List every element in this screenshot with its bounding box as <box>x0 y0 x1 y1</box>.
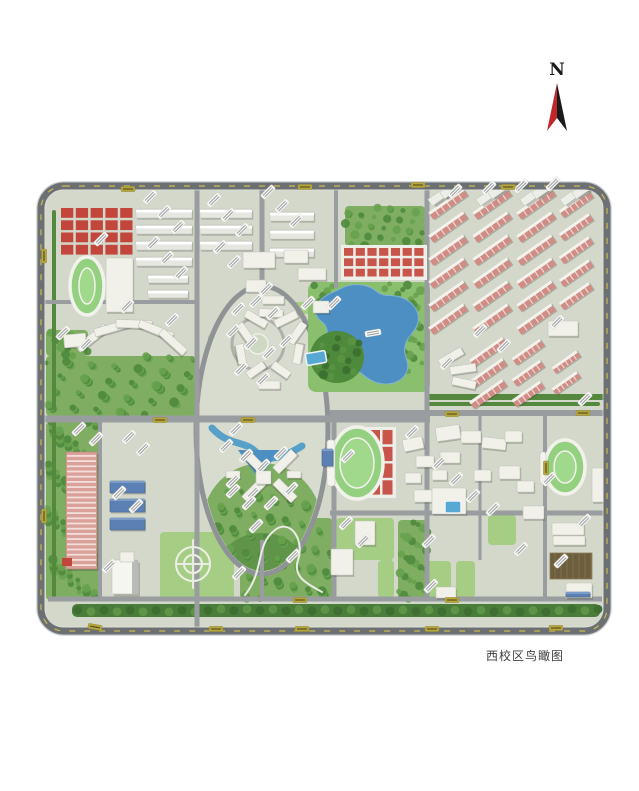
building <box>436 587 456 598</box>
tree <box>415 239 422 246</box>
tree <box>91 589 98 596</box>
court-cell <box>383 480 393 494</box>
roof-ridge <box>148 291 188 294</box>
court-cell <box>91 208 103 218</box>
tree <box>56 343 65 352</box>
court-cell <box>367 248 376 256</box>
tree <box>387 205 394 212</box>
boulevard-tree <box>269 605 278 614</box>
road-label <box>209 626 223 631</box>
court-cell <box>120 245 132 255</box>
stripe <box>67 543 96 545</box>
boulevard-tree <box>308 607 317 616</box>
tree <box>420 361 425 366</box>
label-text-line <box>551 627 561 628</box>
tree <box>184 371 190 377</box>
building-group <box>243 252 276 270</box>
tree <box>116 407 125 416</box>
building <box>405 473 421 483</box>
building <box>414 490 432 502</box>
boulevard-tree <box>321 605 330 614</box>
tree <box>350 369 357 376</box>
tree <box>299 521 305 527</box>
tree <box>169 397 179 407</box>
tree <box>69 352 76 359</box>
building-group <box>298 268 327 282</box>
tree <box>387 282 392 287</box>
label-text-line <box>578 412 588 413</box>
boulevard-tree <box>347 605 356 614</box>
building-group <box>553 536 586 547</box>
building-group <box>331 549 354 577</box>
tree <box>396 568 405 577</box>
boulevard-tree <box>555 606 564 615</box>
building-group <box>474 470 492 483</box>
tree <box>417 341 421 345</box>
label-text-line <box>413 184 423 185</box>
boulevard-tree <box>516 607 525 616</box>
label-text-line <box>243 419 253 420</box>
boulevard-tree <box>152 606 161 615</box>
building <box>505 431 522 442</box>
building <box>499 466 520 479</box>
boulevard-tree <box>425 606 434 615</box>
tree <box>60 519 66 525</box>
road-label <box>543 461 548 475</box>
building <box>523 506 544 519</box>
court-cell <box>344 258 353 266</box>
map-interior <box>41 172 608 631</box>
roof-ridge <box>110 481 145 483</box>
hedge <box>52 420 56 600</box>
tree <box>353 348 362 357</box>
road-label <box>576 410 590 415</box>
tree <box>374 204 382 212</box>
tree <box>44 401 52 409</box>
tree <box>72 440 78 446</box>
boulevard-tree <box>373 605 382 614</box>
stripe <box>67 491 96 493</box>
road-label <box>445 597 459 602</box>
label-text-line <box>297 628 307 629</box>
road-label <box>445 411 459 416</box>
boulevard-tree <box>334 607 343 616</box>
tree <box>134 364 143 373</box>
building-group <box>481 437 507 452</box>
boulevard-tree <box>87 607 96 616</box>
building <box>474 470 491 481</box>
striped-building <box>66 452 97 569</box>
tree <box>406 228 413 235</box>
tree <box>345 358 352 365</box>
tree <box>335 335 341 341</box>
tree <box>82 584 91 593</box>
court-cell <box>367 258 376 266</box>
tree <box>64 435 72 443</box>
building <box>284 250 308 263</box>
boulevard-tree <box>568 605 577 614</box>
tree <box>177 384 185 392</box>
court-cell <box>344 269 353 277</box>
tree <box>75 390 80 395</box>
tree <box>123 394 130 401</box>
boulevard-tree <box>477 606 486 615</box>
label-text-line <box>503 186 513 187</box>
building <box>287 471 301 478</box>
tree <box>364 233 372 241</box>
tree <box>340 346 346 352</box>
campus-map <box>0 0 639 791</box>
swimming-pool <box>445 501 461 513</box>
road-label <box>241 417 255 422</box>
red-hut <box>62 558 72 566</box>
lawn <box>456 561 475 598</box>
page: N 西校区鸟瞰图 <box>0 0 639 791</box>
tree <box>61 350 70 359</box>
boulevard-tree <box>594 605 603 614</box>
court-cell <box>105 208 117 218</box>
roof-ridge <box>322 449 333 451</box>
building-group <box>414 490 433 504</box>
stripe <box>67 538 96 540</box>
building-group <box>287 471 302 480</box>
building <box>435 424 461 441</box>
tree <box>111 363 116 368</box>
tower-side <box>132 560 138 594</box>
stripe <box>67 476 96 478</box>
pool-group <box>445 501 461 513</box>
swimming-pool <box>305 350 327 365</box>
stripe <box>67 512 96 514</box>
building-group <box>256 471 272 486</box>
tree <box>166 354 172 360</box>
tree <box>342 366 350 374</box>
court-cell <box>61 208 73 218</box>
court-cell <box>414 269 423 277</box>
building <box>592 468 604 502</box>
tree <box>396 589 401 594</box>
road-label <box>41 509 46 523</box>
boulevard-tree <box>503 606 512 615</box>
building <box>298 268 326 280</box>
court-cell <box>414 248 423 256</box>
tree <box>400 208 405 213</box>
building <box>432 470 447 480</box>
label-text-line <box>300 186 310 187</box>
court-cell <box>91 220 103 230</box>
court-cell <box>403 248 412 256</box>
court-cell <box>379 269 388 277</box>
tree <box>400 287 405 292</box>
tree <box>142 352 150 360</box>
roof-ridge <box>200 210 252 213</box>
court-cell <box>383 430 393 444</box>
tree <box>396 216 403 223</box>
boulevard-tree <box>74 606 83 615</box>
building <box>553 536 585 545</box>
tree <box>316 527 322 533</box>
tree <box>355 340 362 347</box>
boulevard-tree <box>113 607 122 616</box>
label-text-line <box>427 628 437 629</box>
court-cell <box>391 269 400 277</box>
court-cell <box>379 248 388 256</box>
tree <box>93 407 98 412</box>
tree <box>319 370 328 379</box>
tree <box>347 337 356 346</box>
boulevard-tree <box>282 606 291 615</box>
boulevard-tree <box>243 605 252 614</box>
label-text-line <box>447 599 457 600</box>
label-text-line <box>545 463 546 473</box>
tower-wing <box>120 552 134 562</box>
tree <box>306 564 315 573</box>
stripe <box>67 523 96 525</box>
tree <box>274 577 283 586</box>
stripe <box>67 528 96 530</box>
roof-ridge <box>566 592 590 594</box>
court-cell <box>105 220 117 230</box>
court-cell <box>120 208 132 218</box>
tree <box>355 222 363 230</box>
court-cell <box>344 248 353 256</box>
road-label <box>121 186 135 191</box>
road-label <box>41 249 46 263</box>
court-cell <box>356 269 365 277</box>
boulevard-tree <box>139 607 148 616</box>
label-text-line <box>155 419 165 420</box>
tree <box>344 210 351 217</box>
tree <box>289 582 296 589</box>
tree <box>337 355 345 363</box>
stripe <box>67 455 96 457</box>
stripe <box>67 460 96 462</box>
building-group <box>523 506 545 521</box>
track-infield <box>79 268 95 304</box>
road-label <box>411 182 425 187</box>
tree <box>358 212 364 218</box>
tree <box>129 380 135 386</box>
boulevard-tree <box>581 606 590 615</box>
building-group <box>405 473 422 485</box>
tree <box>266 513 275 522</box>
tree <box>383 215 391 223</box>
tree <box>282 516 289 523</box>
stripe <box>67 517 96 519</box>
road-label <box>298 184 312 189</box>
tree <box>217 503 225 511</box>
road-label <box>501 184 515 189</box>
boulevard-tree <box>256 606 265 615</box>
lawn <box>488 515 516 545</box>
stripe <box>67 486 96 488</box>
tree <box>251 512 256 517</box>
building <box>262 296 284 304</box>
tree <box>234 507 240 513</box>
tree <box>98 391 107 400</box>
court-cell <box>61 233 73 243</box>
tree <box>75 578 80 583</box>
tree <box>332 344 340 352</box>
tree <box>229 525 237 533</box>
tree <box>410 219 415 224</box>
roof-ridge <box>270 213 314 216</box>
road-label <box>153 417 167 422</box>
tree <box>148 398 154 404</box>
tree <box>87 361 94 368</box>
building-group <box>461 431 482 445</box>
building-group <box>517 481 535 494</box>
blue-roof-building <box>322 449 333 466</box>
stripe <box>67 481 96 483</box>
stripe <box>67 549 96 551</box>
court-cell <box>367 269 376 277</box>
tree <box>419 230 424 235</box>
tree <box>410 520 416 526</box>
boulevard-tree <box>165 607 174 616</box>
building <box>331 549 353 575</box>
tree <box>77 590 82 595</box>
building <box>313 301 329 313</box>
road-label <box>295 626 309 631</box>
court-cell <box>76 208 88 218</box>
tree <box>402 237 411 246</box>
boulevard-tree <box>490 607 499 616</box>
tree <box>301 500 310 509</box>
boulevard-tree <box>295 605 304 614</box>
boulevard-tree <box>542 608 551 617</box>
tree <box>350 230 359 239</box>
building <box>481 437 506 450</box>
boulevard-tree <box>438 607 447 616</box>
court-cell <box>76 233 88 243</box>
court-cell <box>356 248 365 256</box>
stripe <box>67 554 96 556</box>
road-label <box>549 625 563 630</box>
track-infield <box>554 451 576 483</box>
tree <box>413 293 418 298</box>
boulevard-tree <box>464 607 473 616</box>
court-cell <box>414 258 423 266</box>
court-cell <box>91 245 103 255</box>
tree <box>372 215 376 219</box>
label-text-line <box>295 599 305 600</box>
court-cell <box>76 220 88 230</box>
court-cell <box>403 269 412 277</box>
stripe <box>67 471 96 473</box>
building <box>461 431 481 443</box>
tree <box>398 551 405 558</box>
building-group <box>499 466 521 481</box>
tree <box>412 208 421 217</box>
court-cell <box>391 258 400 266</box>
tree <box>330 364 336 370</box>
court-cell <box>356 258 365 266</box>
building-group <box>505 431 523 444</box>
tree <box>305 586 311 592</box>
tree <box>403 533 412 542</box>
road-label <box>425 626 439 631</box>
hedge <box>52 210 56 410</box>
tree <box>242 549 250 557</box>
roof-ridge <box>136 226 192 229</box>
label-text-line <box>211 628 221 629</box>
boulevard-tree <box>451 606 460 615</box>
lawn <box>378 560 394 598</box>
court-cell <box>105 245 117 255</box>
boulevard-tree <box>230 606 239 615</box>
stripe <box>67 502 96 504</box>
boulevard-tree <box>360 607 369 616</box>
tree <box>322 568 330 576</box>
label-text-line <box>43 251 44 261</box>
stripe <box>67 507 96 509</box>
court-cell <box>61 220 73 230</box>
tree <box>381 285 388 292</box>
tree <box>80 374 89 383</box>
court-cell <box>391 248 400 256</box>
court-cell <box>120 233 132 243</box>
court-cell <box>61 245 73 255</box>
tree <box>381 226 386 231</box>
tree <box>393 226 401 234</box>
tree <box>416 522 421 527</box>
building <box>416 456 434 467</box>
tree <box>45 461 52 468</box>
roof-ridge <box>136 242 192 245</box>
tree <box>190 357 195 362</box>
court-cell <box>120 220 132 230</box>
tree <box>311 282 318 289</box>
court-cell <box>379 258 388 266</box>
tree <box>391 237 396 242</box>
boulevard-tree <box>412 607 421 616</box>
boulevard-tree <box>399 605 408 614</box>
building <box>256 471 271 484</box>
tree <box>368 223 374 229</box>
road-label <box>293 597 307 602</box>
label-text-line <box>43 511 44 521</box>
court-cell <box>403 258 412 266</box>
pool-group <box>305 350 327 365</box>
tree <box>412 580 417 585</box>
tree <box>105 378 112 385</box>
tree <box>319 342 325 348</box>
boulevard-tree <box>386 607 395 616</box>
boulevard-tree <box>204 606 213 615</box>
boulevard-tree <box>100 606 109 615</box>
tree <box>151 381 160 390</box>
court-cell <box>76 245 88 255</box>
tree <box>159 368 167 376</box>
tree <box>277 536 286 545</box>
building <box>517 481 534 492</box>
tree <box>70 404 77 411</box>
tree <box>406 555 416 565</box>
stripe <box>67 533 96 535</box>
stripe <box>67 465 96 467</box>
boulevard-tree <box>529 606 538 615</box>
building-group <box>284 250 309 265</box>
tree <box>412 337 418 343</box>
roof-ridge <box>270 231 314 234</box>
stripe <box>67 497 96 499</box>
tree <box>341 219 350 228</box>
roof-ridge <box>110 518 145 520</box>
tree <box>311 545 319 553</box>
tree <box>58 373 63 378</box>
boulevard-tree <box>178 606 187 615</box>
